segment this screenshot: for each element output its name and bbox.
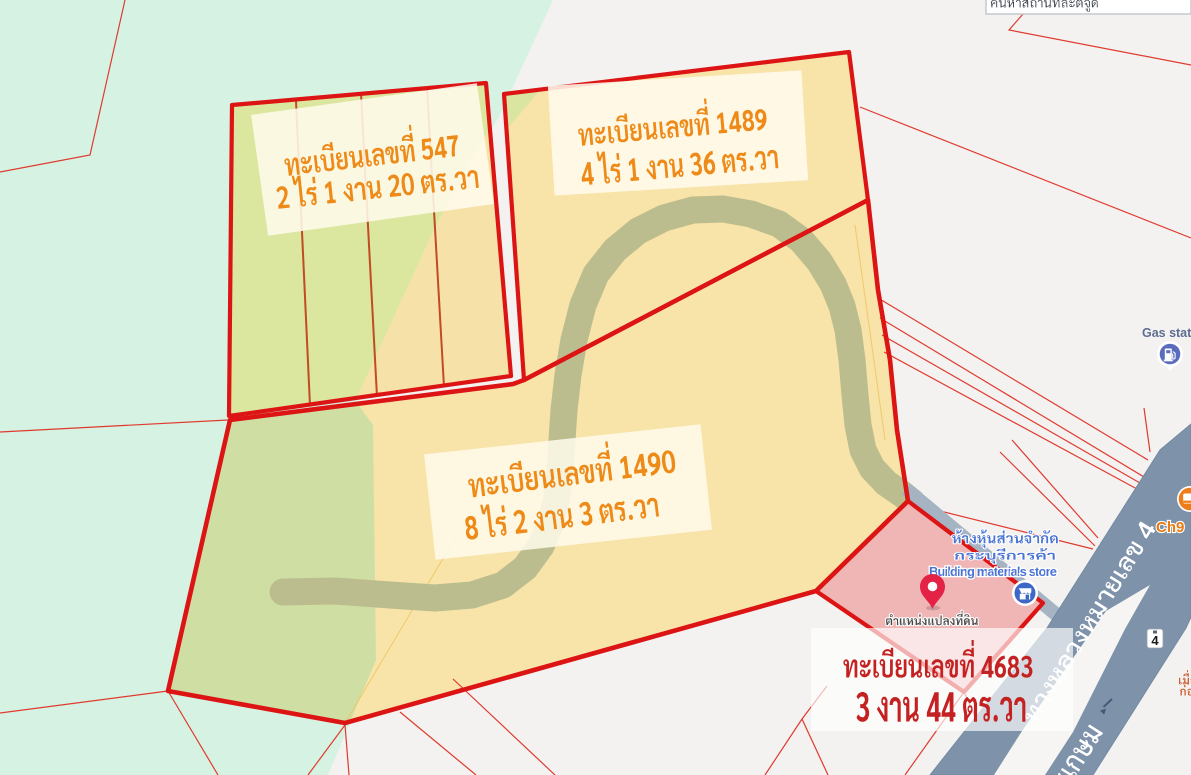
svg-text:4: 4 [1151, 633, 1159, 648]
svg-text:Gas station: Gas station [1142, 326, 1191, 340]
svg-text:Building materials store: Building materials store [929, 564, 1057, 579]
svg-text:Ch9: Ch9 [1156, 519, 1184, 536]
